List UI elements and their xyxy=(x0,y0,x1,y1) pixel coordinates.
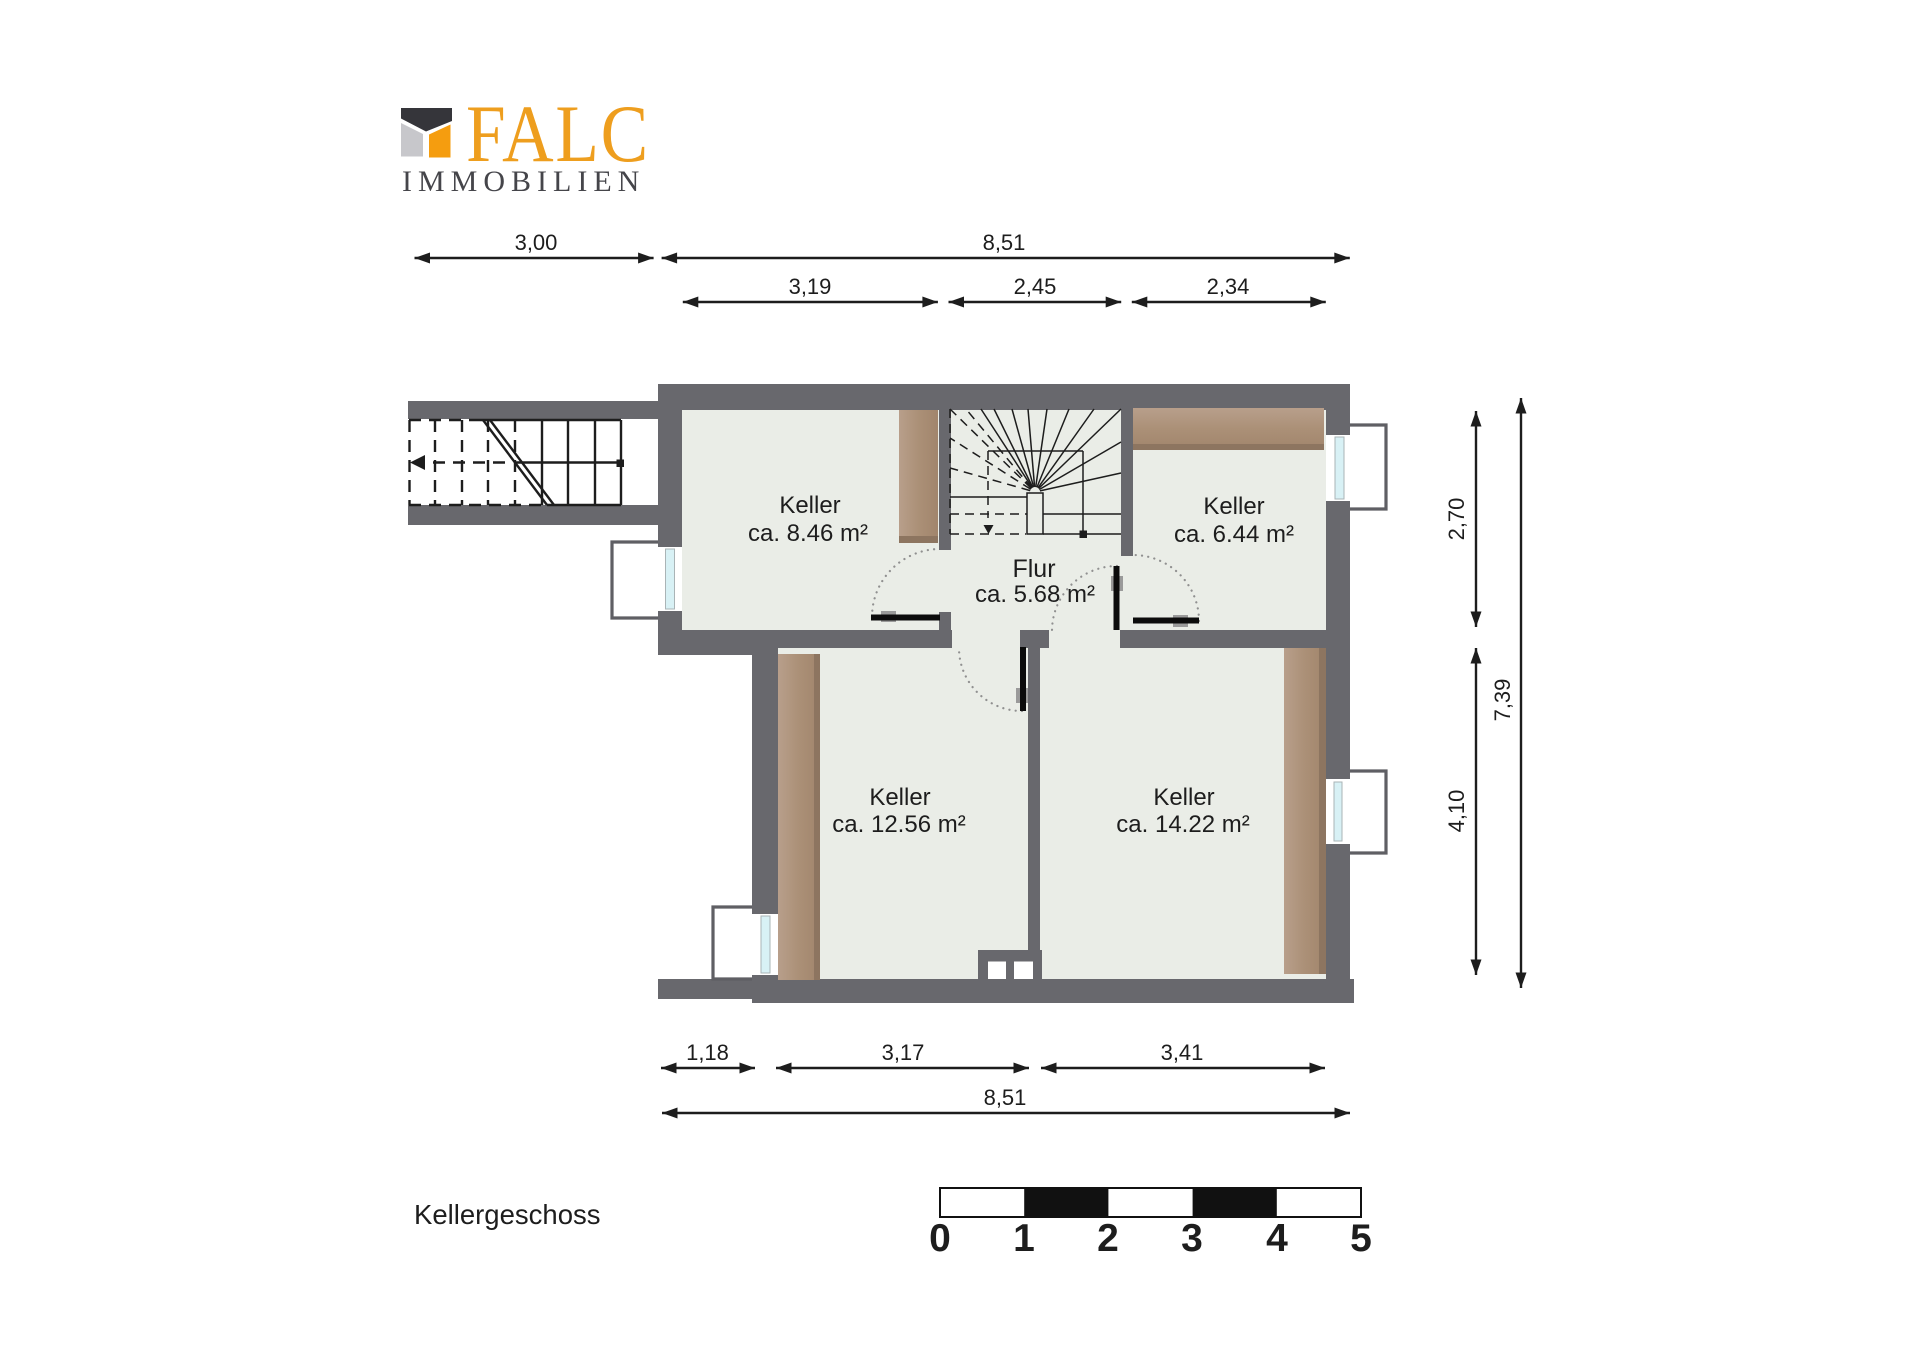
svg-text:0: 0 xyxy=(929,1217,951,1260)
svg-text:3,41: 3,41 xyxy=(1161,1040,1204,1065)
svg-text:IMMOBILIEN: IMMOBILIEN xyxy=(402,165,645,198)
svg-text:2: 2 xyxy=(1097,1217,1119,1260)
svg-text:8,51: 8,51 xyxy=(983,230,1026,255)
svg-text:1: 1 xyxy=(1013,1217,1035,1260)
svg-text:2,34: 2,34 xyxy=(1207,274,1250,299)
svg-text:Keller: Keller xyxy=(1203,493,1264,520)
svg-text:2,70: 2,70 xyxy=(1444,498,1469,541)
svg-text:ca. 12.56 m²: ca. 12.56 m² xyxy=(832,811,965,838)
svg-text:4: 4 xyxy=(1266,1217,1288,1260)
svg-text:4,10: 4,10 xyxy=(1444,790,1469,833)
svg-text:3,17: 3,17 xyxy=(882,1040,925,1065)
svg-text:Keller: Keller xyxy=(1153,784,1214,811)
svg-text:2,45: 2,45 xyxy=(1014,274,1057,299)
svg-text:Flur: Flur xyxy=(1012,555,1055,583)
svg-text:3: 3 xyxy=(1181,1217,1203,1260)
svg-text:ca. 6.44 m²: ca. 6.44 m² xyxy=(1174,521,1294,548)
svg-text:3,00: 3,00 xyxy=(515,230,558,255)
svg-text:1,18: 1,18 xyxy=(686,1040,729,1065)
svg-text:ca. 5.68 m²: ca. 5.68 m² xyxy=(975,581,1095,608)
svg-text:3,19: 3,19 xyxy=(789,274,832,299)
svg-text:ca. 8.46 m²: ca. 8.46 m² xyxy=(748,520,868,547)
svg-text:ca. 14.22 m²: ca. 14.22 m² xyxy=(1116,811,1249,838)
svg-text:8,51: 8,51 xyxy=(984,1085,1027,1110)
svg-text:5: 5 xyxy=(1350,1217,1372,1260)
svg-text:Keller: Keller xyxy=(779,492,840,519)
svg-text:Kellergeschoss: Kellergeschoss xyxy=(414,1199,600,1230)
svg-text:Keller: Keller xyxy=(869,784,930,811)
svg-text:7,39: 7,39 xyxy=(1490,679,1515,722)
